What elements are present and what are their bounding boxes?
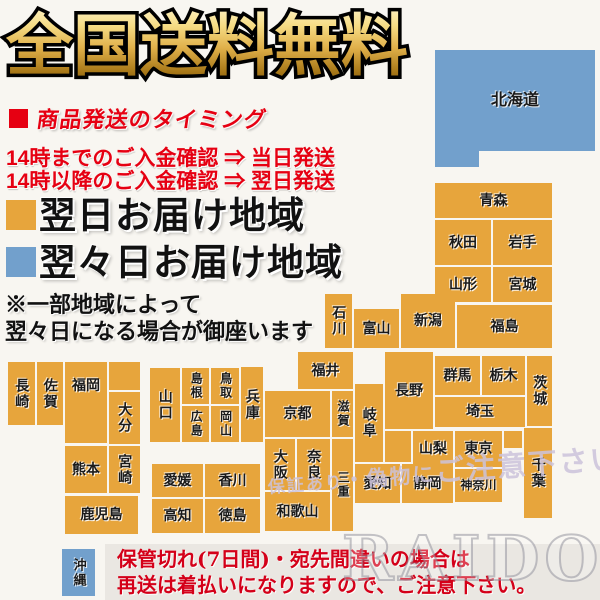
- prefecture-block-福井: 福井: [298, 352, 353, 389]
- prefecture-block-高知: 高知: [152, 499, 203, 533]
- prefecture-block-長崎: 長崎: [8, 362, 35, 425]
- prefecture-label: 佐賀: [42, 378, 57, 410]
- prefecture-block-富山: 富山: [354, 309, 399, 348]
- prefecture-block-岩手: 岩手: [493, 220, 552, 265]
- prefecture-label: 京都: [284, 406, 312, 421]
- page-title-text: 全国送料無料: [6, 0, 408, 92]
- prefecture-label: 香川: [219, 473, 247, 488]
- legend-next-day-swatch: [6, 200, 36, 230]
- prefecture-block-秋田: 秋田: [435, 220, 491, 265]
- prefecture-label: 鹿児島: [81, 507, 123, 522]
- prefecture-block-広島: 広島: [182, 406, 209, 442]
- prefecture-label: 秋田: [449, 235, 477, 250]
- red-square-bullet-icon: [9, 109, 28, 128]
- prefecture-block-京都: 京都: [265, 391, 330, 437]
- shipping-timing-heading-label: 商品発送のタイミング: [35, 102, 270, 134]
- prefecture-label: 茨城: [532, 375, 547, 407]
- watermark-part-2: ・偽物に: [343, 461, 437, 492]
- prefecture-label: 熊本: [72, 462, 100, 477]
- prefecture-label: 栃木: [490, 368, 518, 383]
- watermark-part-1: 保証あり: [267, 473, 344, 498]
- prefecture-block-福岡: 福岡: [65, 362, 107, 443]
- prefecture-label: 岐阜: [361, 407, 376, 439]
- prefecture-label: 群馬: [444, 368, 472, 383]
- prefecture-block-福島: 福島: [457, 305, 552, 348]
- prefecture-block-島根: 島根: [182, 368, 209, 404]
- prefecture-label: 山口: [157, 389, 172, 421]
- prefecture-label: 富山: [363, 321, 391, 336]
- prefecture-label: 宮崎: [117, 454, 132, 486]
- prefecture-label: 徳島: [219, 508, 247, 523]
- prefecture-label: 広島: [189, 410, 202, 438]
- legend-next-day: 翌日お届け地域: [6, 195, 305, 235]
- prefecture-label: 兵庫: [244, 389, 259, 421]
- prefecture-block-栃木: 栃木: [482, 356, 525, 395]
- map-filler-block: [109, 362, 140, 390]
- prefecture-block-熊本: 熊本: [65, 446, 107, 493]
- prefecture-block-石川: 石川: [325, 294, 352, 348]
- prefecture-label: 鳥取: [218, 372, 231, 400]
- prefecture-label: 長野: [395, 383, 423, 398]
- prefecture-label: 沖縄: [71, 558, 85, 588]
- shipping-rule-after-14: 14時以降のご入金確認 ⇒ 翌日発送: [6, 165, 335, 195]
- prefecture-block-岐阜: 岐阜: [355, 384, 383, 462]
- legend-two-days: 翌々日お届け地域: [6, 242, 343, 282]
- legend-two-days-label: 翌々日お届け地域: [39, 242, 343, 282]
- prefecture-block-愛媛: 愛媛: [152, 464, 203, 497]
- prefecture-label: 長崎: [14, 378, 29, 410]
- prefecture-label: 大分: [117, 402, 132, 434]
- prefecture-block-佐賀: 佐賀: [37, 362, 63, 425]
- prefecture-block-兵庫: 兵庫: [241, 367, 263, 442]
- legend-next-day-label: 翌日お届け地域: [39, 195, 305, 235]
- prefecture-block-宮崎: 宮崎: [109, 446, 140, 493]
- prefecture-block-鹿児島: 鹿児島: [65, 496, 138, 534]
- prefecture-label: 和歌山: [277, 504, 319, 519]
- prefecture-block-群馬: 群馬: [435, 356, 480, 395]
- prefecture-label: 石川: [331, 305, 346, 337]
- prefecture-block-香川: 香川: [205, 464, 260, 497]
- prefecture-label: 青森: [480, 193, 508, 208]
- prefecture-block-青森: 青森: [435, 183, 552, 218]
- prefecture-label: 埼玉: [466, 404, 494, 419]
- prefecture-label: 北海道: [491, 92, 539, 110]
- prefecture-block-大分: 大分: [109, 392, 140, 444]
- prefecture-label: 山形: [449, 277, 477, 292]
- prefecture-block-新潟: 新潟: [401, 294, 455, 348]
- prefecture-label: 福島: [491, 319, 519, 334]
- prefecture-label: 新潟: [414, 313, 442, 328]
- prefecture-label: 滋賀: [336, 400, 349, 428]
- partial-area-note: ※一部地域によって 翌々日になる場合が御座います: [5, 292, 313, 346]
- shipping-timing-heading: 商品発送のタイミング: [9, 102, 267, 134]
- prefecture-block-埼玉: 埼玉: [435, 397, 525, 427]
- prefecture-block-北海道: 北海道: [435, 50, 595, 151]
- prefecture-block-茨城: 茨城: [527, 356, 552, 426]
- prefecture-label: 高知: [164, 508, 192, 523]
- prefecture-label: 岡山: [218, 410, 231, 438]
- prefecture-block-岡山: 岡山: [211, 406, 239, 442]
- brand-watermark: RAIDOU: [342, 522, 600, 595]
- prefecture-block-沖縄: 沖縄: [62, 549, 95, 596]
- prefecture-label: 福井: [312, 363, 340, 378]
- prefecture-block-長野: 長野: [385, 352, 433, 429]
- prefecture-label: 愛媛: [164, 473, 192, 488]
- prefecture-label: 宮城: [509, 277, 537, 292]
- page-title: 全国送料無料 全国送料無料: [6, 0, 436, 95]
- note-line-1: ※一部地域によって: [5, 292, 313, 319]
- prefecture-block-徳島: 徳島: [205, 499, 260, 533]
- map-filler-block: [435, 151, 479, 167]
- prefecture-block-山口: 山口: [150, 368, 180, 442]
- prefecture-label: 島根: [189, 372, 202, 400]
- prefecture-label: 福岡: [72, 378, 100, 393]
- prefecture-label: 岩手: [509, 235, 537, 250]
- legend-two-days-swatch: [6, 247, 36, 277]
- prefecture-block-宮城: 宮城: [493, 267, 552, 302]
- prefecture-block-滋賀: 滋賀: [332, 391, 353, 437]
- note-line-2: 翌々日になる場合が御座います: [5, 319, 313, 346]
- prefecture-block-鳥取: 鳥取: [211, 368, 239, 404]
